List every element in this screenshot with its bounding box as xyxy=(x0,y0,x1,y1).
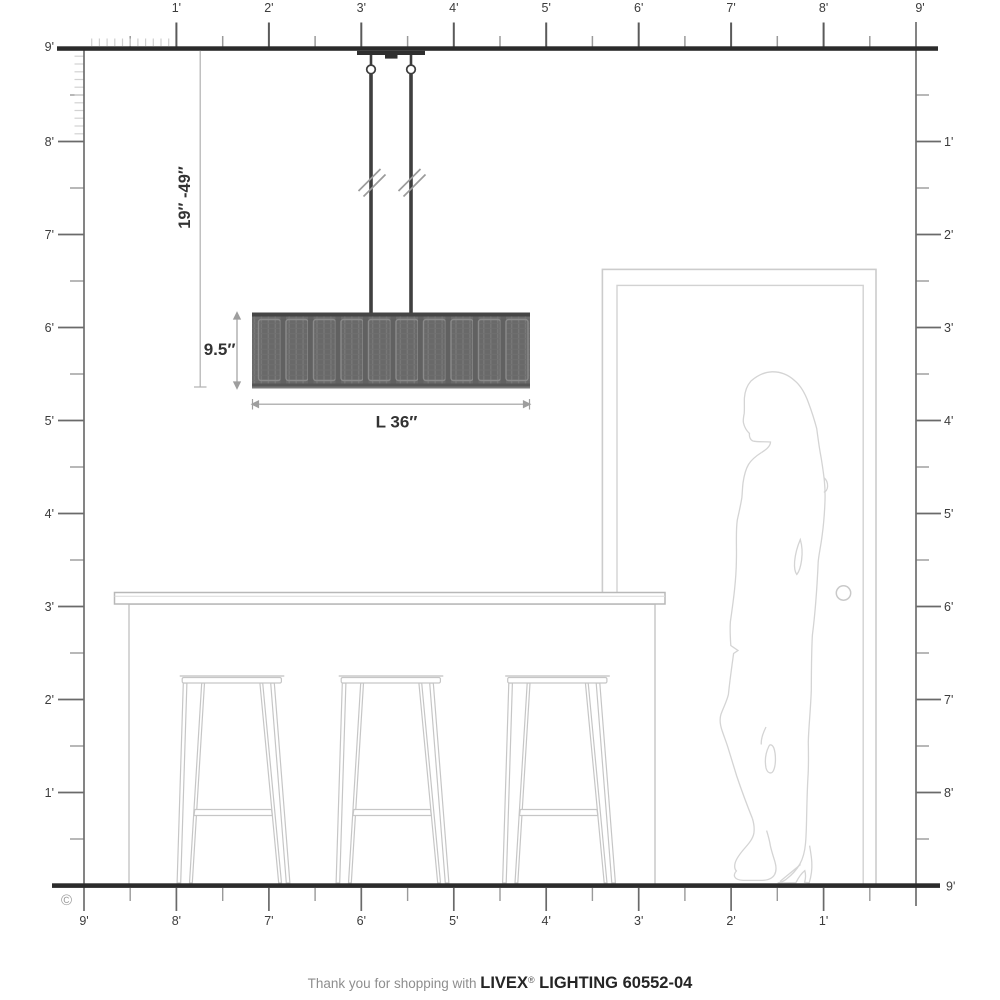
svg-text:6': 6' xyxy=(944,600,953,614)
svg-text:3': 3' xyxy=(357,1,366,15)
svg-text:5': 5' xyxy=(45,414,54,428)
svg-text:3': 3' xyxy=(944,321,953,335)
svg-text:7': 7' xyxy=(726,1,735,15)
svg-text:©: © xyxy=(61,892,72,909)
svg-text:9': 9' xyxy=(915,1,924,15)
svg-text:5': 5' xyxy=(944,507,953,521)
svg-text:2': 2' xyxy=(45,693,54,707)
svg-text:3': 3' xyxy=(45,600,54,614)
svg-text:8': 8' xyxy=(944,786,953,800)
svg-text:2': 2' xyxy=(726,914,735,928)
svg-text:7': 7' xyxy=(264,914,273,928)
svg-text:4': 4' xyxy=(944,414,953,428)
svg-text:8': 8' xyxy=(172,914,181,928)
svg-text:8': 8' xyxy=(45,135,54,149)
svg-text:6': 6' xyxy=(357,914,366,928)
svg-text:2': 2' xyxy=(264,1,273,15)
svg-text:1': 1' xyxy=(819,914,828,928)
svg-text:Thank you for shopping with LI: Thank you for shopping with LIVEX® LIGHT… xyxy=(308,974,693,992)
svg-text:6': 6' xyxy=(45,321,54,335)
svg-text:9': 9' xyxy=(946,880,955,894)
svg-text:1': 1' xyxy=(45,786,54,800)
svg-text:3': 3' xyxy=(634,914,643,928)
svg-text:L 36″: L 36″ xyxy=(376,413,418,432)
svg-text:1': 1' xyxy=(944,135,953,149)
svg-text:5': 5' xyxy=(542,1,551,15)
svg-text:7': 7' xyxy=(45,228,54,242)
svg-text:8': 8' xyxy=(819,1,828,15)
svg-text:4': 4' xyxy=(449,1,458,15)
svg-text:2': 2' xyxy=(944,228,953,242)
svg-text:4': 4' xyxy=(45,507,54,521)
svg-text:5': 5' xyxy=(449,914,458,928)
svg-text:9.5″: 9.5″ xyxy=(204,340,236,359)
svg-text:4': 4' xyxy=(542,914,551,928)
svg-text:1': 1' xyxy=(172,1,181,15)
svg-text:9': 9' xyxy=(45,40,54,54)
svg-text:9': 9' xyxy=(79,914,88,928)
svg-text:7': 7' xyxy=(944,693,953,707)
svg-text:19″ -49″: 19″ -49″ xyxy=(176,166,194,229)
svg-text:6': 6' xyxy=(634,1,643,15)
